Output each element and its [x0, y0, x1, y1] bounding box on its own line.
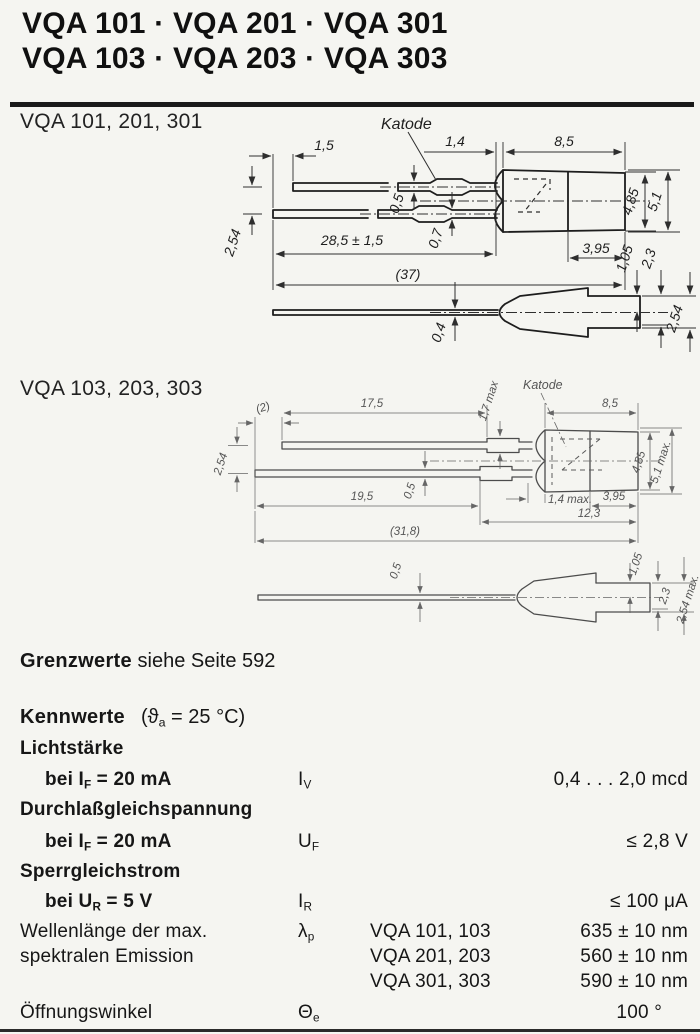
internal-chip-dashed — [514, 179, 550, 212]
footer-rule — [0, 1029, 700, 1032]
dim-flange-width: 1,4 — [445, 133, 465, 149]
dim-total-length: (37) — [396, 266, 421, 282]
figure2-technical-drawing: (2) 17,5 1,7 max Katode 8,5 2,54 0,5 19,… — [0, 373, 700, 640]
dim-lead-length: 28,5 ± 1,5 — [320, 232, 383, 248]
dim-front-face: 3,95 — [582, 240, 609, 256]
katode-label: Katode — [381, 116, 432, 133]
dim-side-tip-max: 2,54 max. — [674, 573, 700, 626]
dim-flange-width: 1,4 max. — [548, 494, 592, 506]
side-lead — [258, 595, 515, 600]
kennwerte-heading: Kennwerte(ϑa = 25 °C) — [20, 706, 245, 729]
katode-label: Katode — [523, 378, 563, 392]
type-name: VQA 201, 203 — [370, 946, 538, 972]
dim-lead-thickness-bottom: 0,7 — [425, 226, 447, 251]
led-top-view — [255, 430, 662, 492]
condition: bei IF = 20 mA — [20, 769, 298, 795]
grenzwerte-note: Grenzwerte siehe Seite 592 — [20, 650, 275, 673]
figure1-technical-drawing: 1,5 Katode 1,4 8,5 0,5 0,7 28,5 ± 1,5 (3… — [0, 108, 700, 374]
led-top-view — [273, 170, 650, 232]
symbol: λp — [298, 921, 370, 947]
dim-side-tip-max: 2,54 — [662, 303, 686, 335]
grenzwerte-label: Grenzwerte — [20, 650, 132, 672]
title-line-2: VQA 103 · VQA 203 · VQA 303 — [22, 41, 448, 76]
led-side-view — [273, 288, 668, 337]
dim-lead-stagger: 1,5 — [314, 137, 334, 153]
header-rule — [10, 102, 694, 107]
side-body-tip — [588, 296, 640, 328]
dim-lead-length-bottom: 19,5 — [351, 491, 374, 503]
dim-side-lead-thickness: 0,4 — [428, 321, 449, 345]
cathode-lead — [293, 183, 388, 191]
dim-body-height-max: 5,1 — [644, 190, 665, 213]
type-name: VQA 101, 103 — [370, 921, 538, 947]
dim-body-height-max: 5,1 max. — [649, 439, 674, 485]
table-row-wellenlaenge-2: spektralen Emission VQA 201, 203 560 ± 1… — [20, 946, 688, 972]
anode-lead — [273, 210, 368, 218]
dim-tip-height: 2,3 — [657, 586, 674, 606]
figure1-dimensions — [243, 132, 696, 352]
dim-tip-offset: 1,05 — [612, 243, 636, 274]
dim-lead-pitch: 2,54 — [220, 227, 244, 259]
symbol: Θe — [298, 1002, 370, 1028]
symbol: IV — [298, 769, 370, 795]
grenzwerte-reference: siehe Seite 592 — [138, 650, 276, 672]
condition: bei IF = 20 mA — [20, 831, 298, 857]
table-row-lichtstaerke-header: Lichtstärke — [20, 738, 688, 764]
dim-lead-thickness-top: 0,5 — [386, 192, 407, 216]
dim-body-inner: 12,3 — [578, 508, 601, 520]
dim-lead-pitch: 2,54 — [212, 452, 231, 478]
table-row-durchlass: bei IF = 20 mA UF ≤ 2,8 V — [20, 831, 688, 857]
table-row-sperr-header: Sperrgleichstrom — [20, 861, 688, 887]
internal-chip-dashed — [552, 437, 602, 485]
symbol: IR — [298, 891, 370, 917]
condition: bei UR = 5 V — [20, 891, 298, 917]
value: 0,4 . . . 2,0 mcd — [538, 769, 688, 795]
dim-lead-thickness: 0,5 — [402, 481, 419, 500]
value: 560 ± 10 nm — [538, 946, 688, 972]
figure2-dimensions — [228, 393, 694, 635]
type-name: VQA 301, 303 — [370, 971, 538, 997]
katode-leader-line — [408, 132, 436, 180]
value: 590 ± 10 nm — [538, 971, 688, 997]
dim-side-lead-thickness: 0,5 — [388, 561, 405, 580]
value: ≤ 100 μA — [538, 891, 688, 917]
dim-tip-offset: 1,05 — [627, 551, 646, 577]
symbol: UF — [298, 831, 370, 857]
dim-body-height-front: 4,85 — [618, 186, 642, 217]
dim-body-height-front: 4,85 — [630, 449, 649, 475]
title-line-1: VQA 101 · VQA 201 · VQA 301 — [22, 6, 448, 41]
datasheet-page: VQA 101 · VQA 201 · VQA 301 VQA 103 · VQ… — [0, 0, 700, 1034]
table-row-oeffnungswinkel: Öffnungswinkel Θe 100 ° — [20, 1002, 688, 1028]
dim-front-face: 3,95 — [603, 491, 626, 503]
led-side-view — [258, 573, 670, 622]
dim-crimp-height: 1,7 max — [477, 379, 501, 423]
dim-body-length: 8,5 — [554, 133, 574, 149]
dim-body-length: 8,5 — [602, 398, 619, 410]
value: 100 ° — [538, 1002, 688, 1028]
dim-lead-stagger: (2) — [255, 400, 272, 416]
page-title: VQA 101 · VQA 201 · VQA 301 VQA 103 · VQ… — [22, 6, 448, 76]
table-row-wellenlaenge-1: Wellenlänge der max. λp VQA 101, 103 635… — [20, 921, 688, 947]
table-row-wellenlaenge-3: VQA 301, 303 590 ± 10 nm — [20, 971, 688, 997]
anode-lead-crimp — [480, 467, 532, 481]
table-row-sperr: bei UR = 5 V IR ≤ 100 μA — [20, 891, 688, 917]
cathode-lead-crimp — [487, 439, 532, 453]
table-row-durchlass-header: Durchlaßgleichspannung — [20, 799, 688, 825]
value: 635 ± 10 nm — [538, 921, 688, 947]
dim-lead-length-top: 17,5 — [361, 398, 384, 410]
cathode-lead — [282, 442, 487, 449]
table-row-lichtstaerke: bei IF = 20 mA IV 0,4 . . . 2,0 mcd — [20, 769, 688, 795]
dim-total-length: (31,8) — [390, 526, 420, 538]
anode-lead — [255, 470, 480, 477]
dim-tip-height: 2,3 — [637, 247, 659, 272]
value: ≤ 2,8 V — [538, 831, 688, 857]
